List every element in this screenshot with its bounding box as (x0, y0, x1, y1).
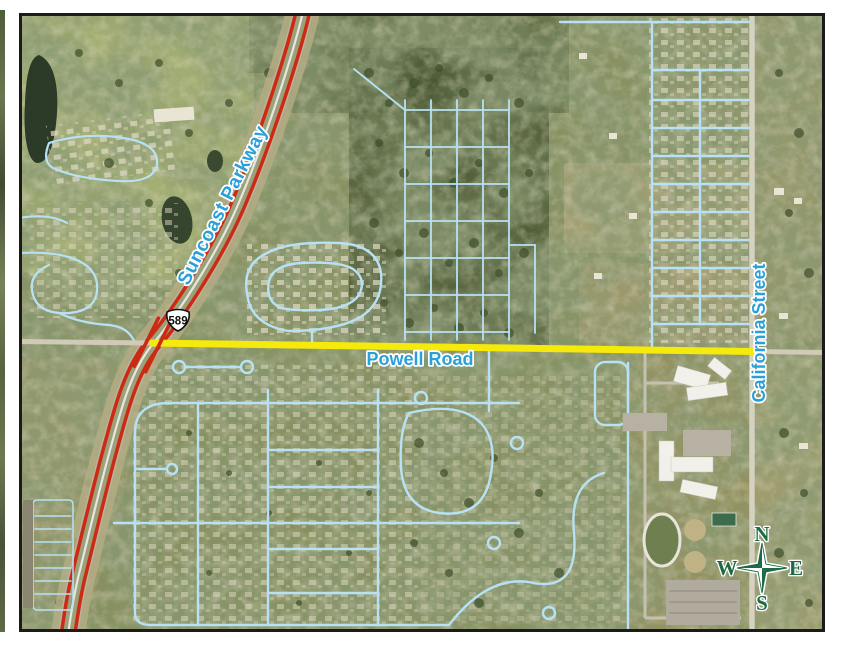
compass-east-label: E (789, 556, 803, 580)
clubhouse-building (154, 107, 195, 123)
california-street-label: California Street (749, 263, 769, 402)
map-figure-page: 589 Suncoast Parkway Powell Road Califor… (0, 0, 843, 650)
running-track (644, 514, 680, 566)
parking-lot-outline (33, 500, 73, 610)
shield-number: 589 (168, 316, 187, 328)
powell-road-label: Powell Road (366, 349, 473, 369)
powell-road-west (19, 342, 150, 344)
commercial-building (23, 500, 33, 608)
compass-north-label: N (754, 522, 769, 546)
map-frame: 589 Suncoast Parkway Powell Road Califor… (19, 13, 825, 632)
compass-south-label: S (756, 591, 768, 615)
small-pond (207, 150, 223, 172)
tennis-courts (712, 513, 736, 526)
compass-west-label: W (717, 556, 738, 580)
aerial-map: 589 Suncoast Parkway Powell Road Califor… (19, 13, 825, 632)
ball-field (684, 551, 706, 573)
ball-field (684, 519, 706, 541)
map-edge-sliver (0, 10, 5, 632)
